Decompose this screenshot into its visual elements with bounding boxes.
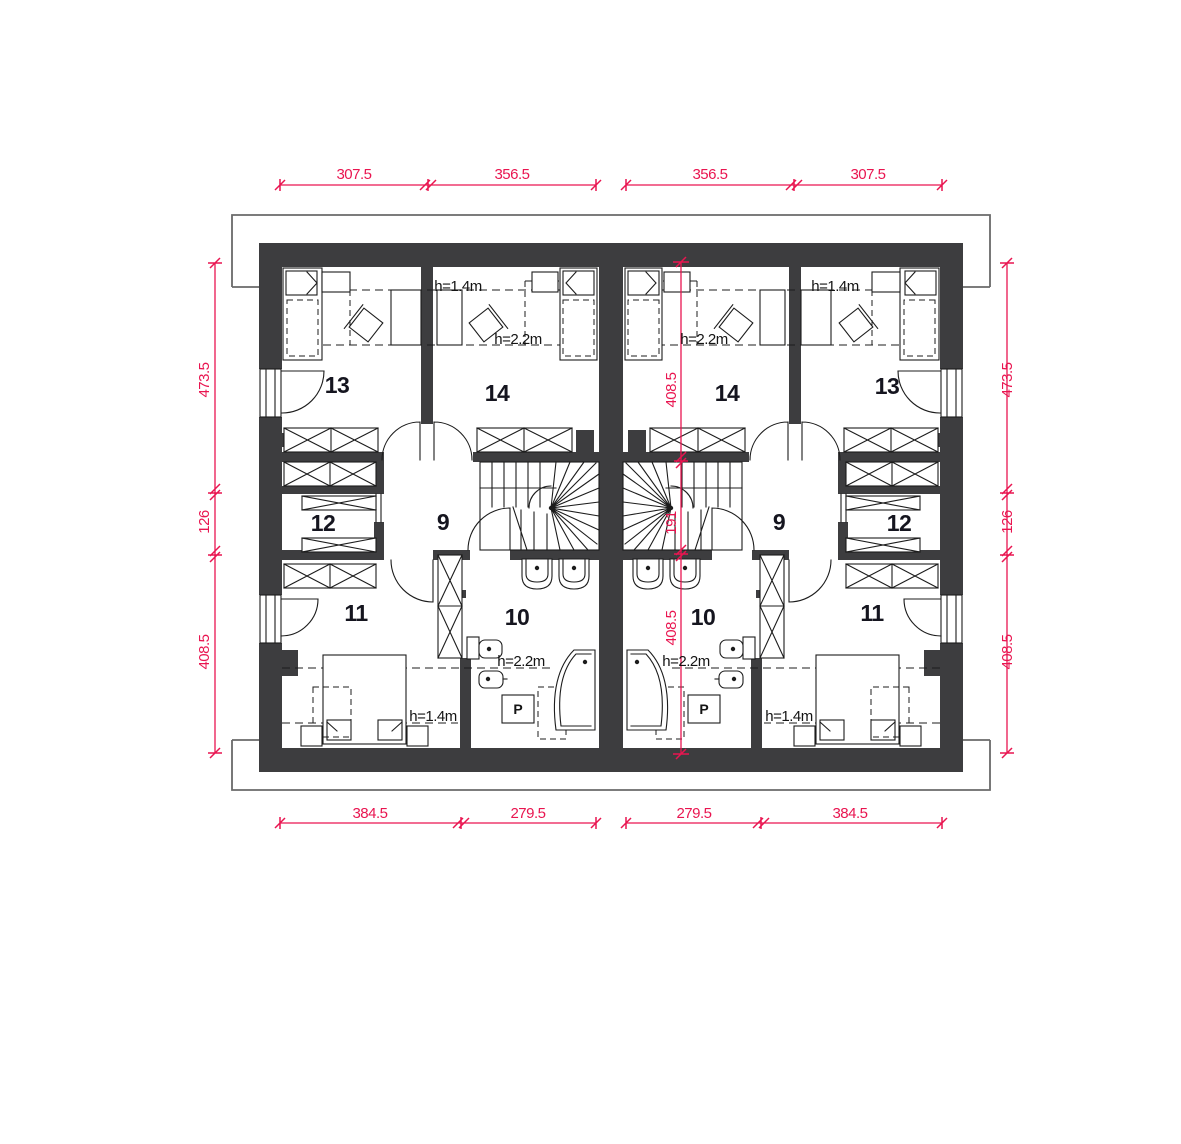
height-label-h22-bottom-left: h=2.2m: [497, 653, 544, 670]
height-label-h14-top-left: h=1.4m: [434, 278, 481, 295]
dim-left-2: 126: [196, 510, 213, 534]
height-label-h14-bottom-left: h=1.4m: [409, 708, 456, 725]
dim-left-3: 408.5: [196, 634, 213, 669]
room-label-9-right: 9: [773, 509, 785, 535]
dim-bottom-4: 384.5: [832, 805, 867, 822]
room-label-11-left: 11: [344, 600, 368, 626]
room-label-9-left: 9: [437, 509, 449, 535]
floor-plan-page: 307.5 356.5 356.5 307.5 384.5 279.5 279.…: [0, 0, 1181, 1144]
height-label-h14-top-right: h=1.4m: [811, 278, 858, 295]
dim-left-1: 473.5: [196, 362, 213, 397]
dim-center-1: 408.5: [663, 372, 680, 407]
room-label-13-right: 13: [875, 373, 900, 399]
height-label-h22-top-left: h=2.2m: [494, 331, 541, 348]
dim-bottom-1: 384.5: [352, 805, 387, 822]
right-unit: [611, 215, 990, 790]
left-unit: [232, 215, 611, 790]
room-label-12-right: 12: [887, 510, 912, 536]
washing-machine-label-left: P: [513, 701, 522, 717]
room-label-10-left: 10: [505, 604, 530, 630]
room-label-12-left: 12: [311, 510, 336, 536]
washing-machine-label-right: P: [699, 701, 708, 717]
dim-right-3: 408.5: [999, 634, 1016, 669]
dim-right-2: 126: [999, 510, 1016, 534]
height-label-h22-bottom-right: h=2.2m: [662, 653, 709, 670]
dim-top-4: 307.5: [850, 166, 885, 183]
room-label-14-right: 14: [715, 380, 740, 406]
dim-center-3: 408.5: [663, 610, 680, 645]
dim-top-2: 356.5: [494, 166, 529, 183]
height-label-h22-top-right: h=2.2m: [680, 331, 727, 348]
height-label-h14-bottom-right: h=1.4m: [765, 708, 812, 725]
dim-bottom-3: 279.5: [676, 805, 711, 822]
dim-top-3: 356.5: [692, 166, 727, 183]
room-label-11-right: 11: [860, 600, 884, 626]
room-label-13-left: 13: [325, 372, 350, 398]
room-label-10-right: 10: [691, 604, 716, 630]
dim-top-1: 307.5: [336, 166, 371, 183]
dim-center-2: 191: [663, 511, 680, 535]
room-label-14-left: 14: [485, 380, 510, 406]
floor-plan-canvas: 307.5 356.5 356.5 307.5 384.5 279.5 279.…: [0, 0, 1181, 1144]
dim-right-1: 473.5: [999, 362, 1016, 397]
dim-bottom-2: 279.5: [510, 805, 545, 822]
